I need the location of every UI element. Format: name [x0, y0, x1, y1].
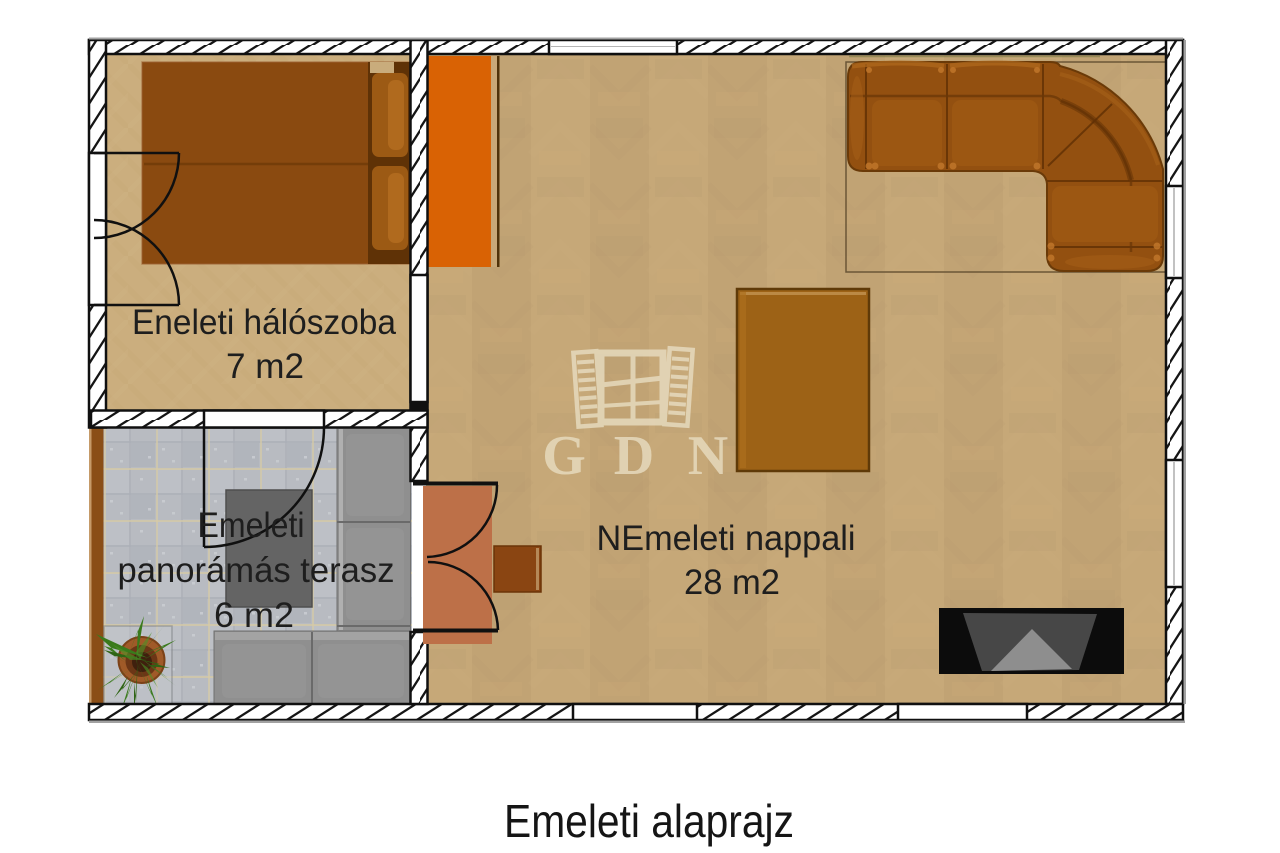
- svg-text:7 m2: 7 m2: [226, 347, 304, 386]
- svg-text:6 m2: 6 m2: [214, 596, 294, 635]
- svg-text:G: G: [542, 425, 586, 487]
- svg-text:Emeleti: Emeleti: [198, 506, 305, 545]
- svg-text:Emeleti alaprajz: Emeleti alaprajz: [504, 795, 794, 847]
- svg-text:D: D: [614, 425, 654, 487]
- svg-text:panorámás terasz: panorámás terasz: [118, 551, 395, 590]
- svg-text:NEmeleti nappali: NEmeleti nappali: [597, 519, 856, 558]
- svg-text:N: N: [688, 425, 728, 487]
- svg-text:28 m2: 28 m2: [684, 563, 780, 602]
- svg-text:Eneleti hálószoba: Eneleti hálószoba: [132, 303, 397, 342]
